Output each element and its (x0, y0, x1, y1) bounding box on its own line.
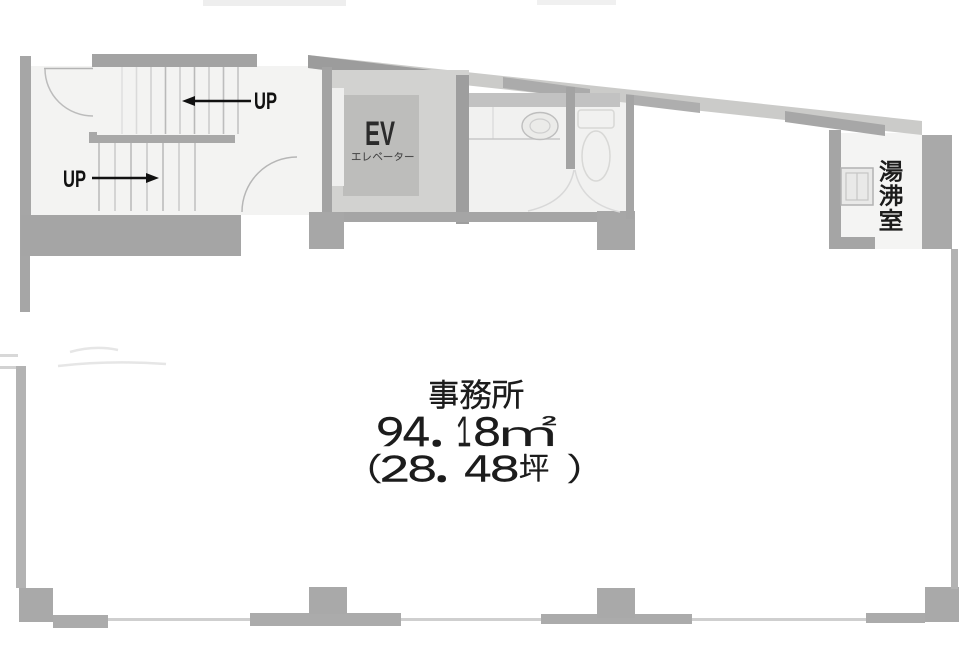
svg-text:UP: UP (63, 166, 86, 193)
svg-text:EV: EV (365, 115, 395, 153)
svg-text:UP: UP (254, 88, 277, 115)
